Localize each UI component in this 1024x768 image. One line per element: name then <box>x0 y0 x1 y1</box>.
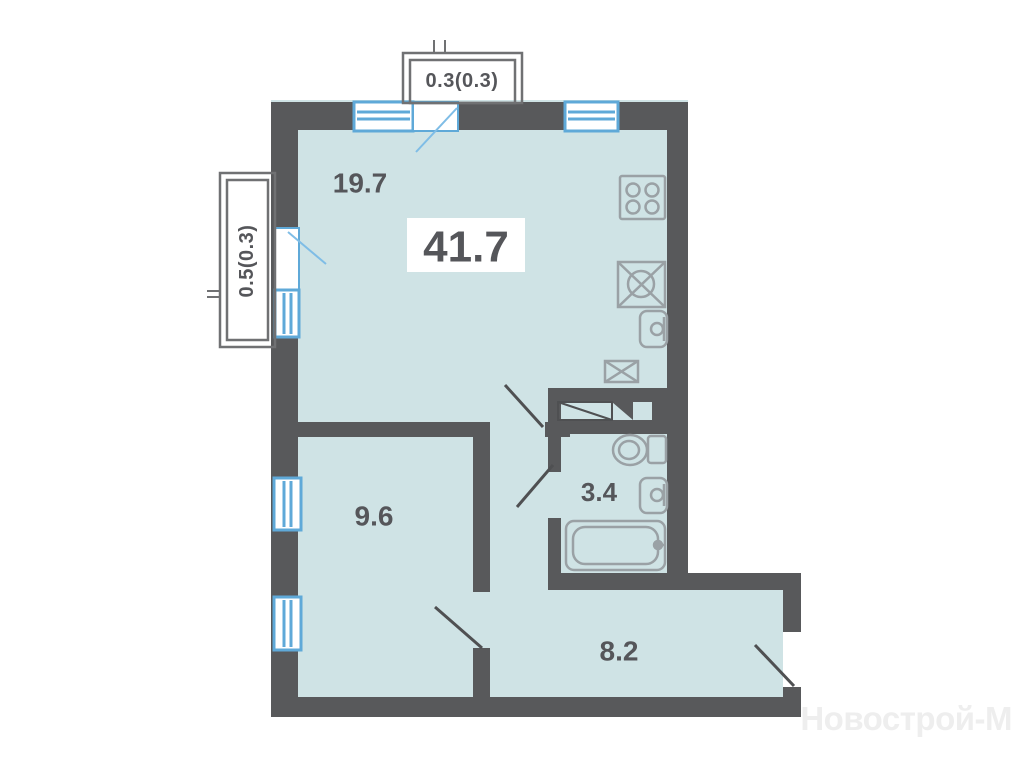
wall-partition-living-bedroom <box>298 422 490 437</box>
bathroom-area-label: 3.4 <box>581 477 618 507</box>
wall-bathroom-left-upper <box>548 388 561 472</box>
window-balcony-left <box>275 290 299 337</box>
wall-top <box>271 102 688 130</box>
window-left-2 <box>274 597 301 650</box>
wall-bedroom-right <box>473 437 490 592</box>
wall-shaft-top <box>548 388 688 402</box>
balcony-door-top <box>413 102 458 131</box>
wall-bathroom-left-lower <box>548 518 561 590</box>
window-top-2 <box>565 102 618 131</box>
wall-hall-right <box>783 588 801 632</box>
total-area-label: 41.7 <box>423 223 509 272</box>
watermark: Новострой-М <box>800 700 1012 737</box>
wall-hall-top <box>548 573 801 590</box>
wall-shaft-segment <box>652 402 668 420</box>
balcony-top-label: 0.3(0.3) <box>426 70 499 92</box>
floor-plan: 19.7 41.7 9.6 3.4 8.2 0.3(0.3) 0.5(0.3) … <box>0 0 1024 768</box>
wall-bathroom-top <box>548 420 668 434</box>
hallway-area-label: 8.2 <box>600 636 639 667</box>
wall-right <box>667 102 688 590</box>
wall-hall-right-stub <box>783 687 801 699</box>
wall-bottom <box>271 697 801 717</box>
balcony-left-label: 0.5(0.3) <box>236 225 258 298</box>
living-area-label: 19.7 <box>333 168 388 199</box>
window-top-1 <box>354 102 413 131</box>
floor-plan-page: 19.7 41.7 9.6 3.4 8.2 0.3(0.3) 0.5(0.3) … <box>0 0 1024 768</box>
bedroom-area-label: 9.6 <box>355 501 394 532</box>
window-left-1 <box>274 478 301 530</box>
wall-bedroom-right-stub <box>473 648 490 697</box>
